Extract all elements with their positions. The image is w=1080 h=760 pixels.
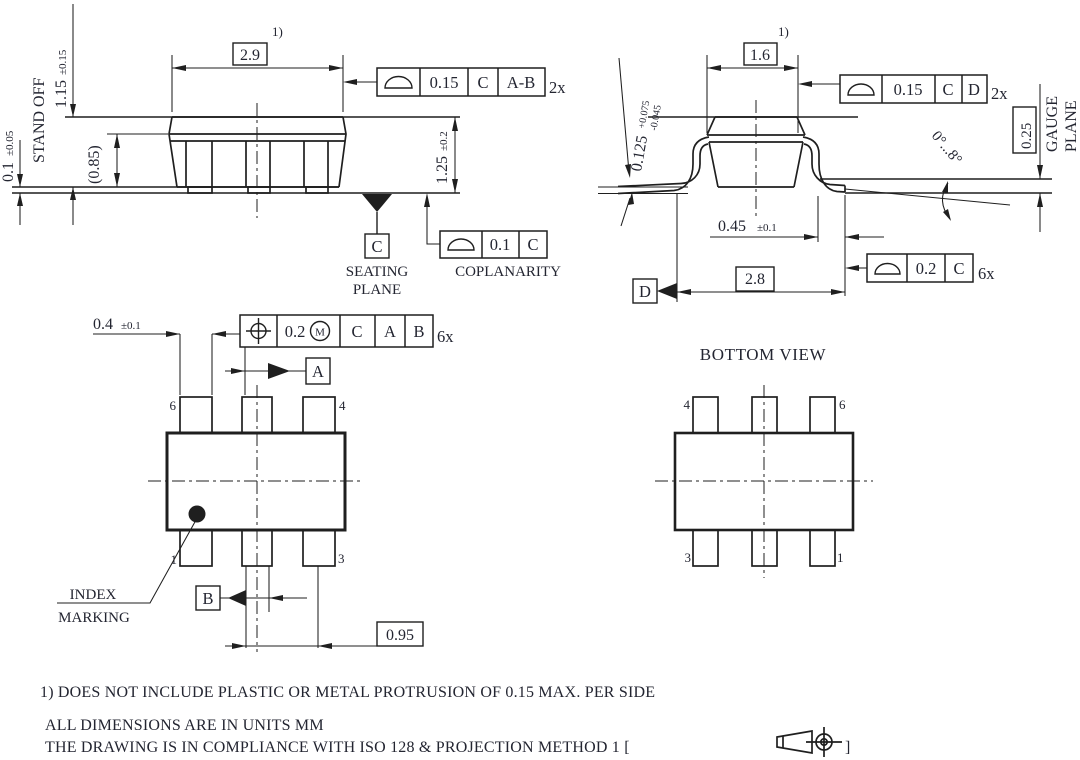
index-marking-dot [189,506,206,523]
note-line-3: THE DRAWING IS IN COMPLIANCE WITH ISO 12… [45,739,630,756]
pin-6 [180,397,212,433]
svg-text:0.1: 0.1 [0,162,17,182]
dim-body-width: 1.6 [750,47,770,64]
svg-text:1.25: 1.25 [434,156,451,184]
profile-tolerance-frame-top-left: 0.15 C A-B 2x [343,68,566,97]
pin-label-6: 6 [170,398,177,413]
svg-text:±0.15: ±0.15 [57,49,69,75]
package-outline-drawing: 2.9 1) 1.15 ±0.15 0.1 ±0.05 STAND OFF (0… [0,0,1080,760]
pin-3 [303,530,335,566]
svg-text:±0.05: ±0.05 [4,130,16,156]
svg-text:C: C [371,237,382,256]
coplanarity-frame: 0.1 C COPLANARITY [424,193,561,280]
svg-text:0.2: 0.2 [285,322,306,341]
pin-label-4: 4 [684,397,691,412]
svg-text:6x: 6x [437,327,454,346]
datum-triangle-icon [657,283,677,299]
svg-text:C: C [477,73,488,92]
pin-6 [810,397,835,433]
svg-text:SEATING: SEATING [346,264,409,280]
pin-3 [693,530,718,566]
svg-text:STAND OFF: STAND OFF [31,77,48,163]
dim-body-height: 1.15 ±0.15 [53,49,70,108]
profile-tolerance-frame-bottom-right: 0.2 C 6x [845,254,995,283]
drawing-canvas: 2.9 1) 1.15 ±0.15 0.1 ±0.05 STAND OFF (0… [0,0,1080,760]
datum-a-flag: A [225,358,330,384]
pin-1 [810,530,835,566]
svg-text:A: A [384,322,396,341]
svg-text:0.25: 0.25 [1019,123,1035,149]
lead-foot [306,187,328,193]
svg-text:C: C [351,322,362,341]
lead-foot [188,187,212,193]
svg-text:MARKING: MARKING [58,610,130,626]
pin-label-3: 3 [338,551,345,566]
gauge-plane-dim: 0.25 GAUGE PLANE [1013,84,1080,232]
svg-text:A-B: A-B [507,73,535,92]
svg-text:±0.2: ±0.2 [438,131,450,151]
svg-text:6x: 6x [978,264,995,283]
svg-text:0.4: 0.4 [93,316,113,333]
end-view: 1.6 1) 0.15 C D 2x 0.125 +0.075 -0.04 [598,24,1080,303]
pin-label-4: 4 [339,398,346,413]
note-line-2: ALL DIMENSIONS ARE IN UNITS MM [45,717,324,734]
svg-text:0.125: 0.125 [628,134,651,172]
svg-text:C: C [942,80,953,99]
svg-text:0°...8°: 0°...8° [928,128,965,168]
svg-text:0.1: 0.1 [490,235,511,254]
profile-tolerance-frame-top-right: 0.15 C D 2x [798,75,1008,103]
svg-text:PLANE: PLANE [1063,100,1080,152]
svg-text:2x: 2x [991,84,1008,103]
lead-thickness-dim: 0.125 +0.075 -0.045 [619,58,664,226]
note-ref-1: 1) [778,24,789,39]
svg-text:M: M [315,327,325,339]
notes: 1) DOES NOT INCLUDE PLASTIC OR METAL PRO… [40,684,851,757]
svg-text:C: C [953,259,964,278]
svg-text:0.15: 0.15 [430,73,459,92]
svg-text:D: D [639,282,651,301]
side-view: 2.9 1) 1.15 ±0.15 0.1 ±0.05 STAND OFF (0… [0,4,566,298]
pin-4 [693,397,718,433]
svg-text:0.45: 0.45 [718,218,746,235]
note-ref-1: 1) [272,24,283,39]
svg-text:2.8: 2.8 [745,271,765,288]
dim-total-height: 1.25 ±0.2 [434,131,451,184]
dim-body-width: 2.9 [240,47,260,64]
datum-triangle-icon [362,194,392,212]
index-marking-callout: INDEX MARKING [57,520,196,626]
svg-text:D: D [968,80,980,99]
pitch-dim: 0.95 [225,622,423,649]
svg-text:0.15: 0.15 [894,80,923,99]
svg-text:C: C [527,235,538,254]
bottom-view-title: BOTTOM VIEW [700,345,827,364]
svg-text:B: B [413,322,424,341]
datum-d-flag: D [633,279,677,303]
svg-text:GAUGE: GAUGE [1044,96,1061,152]
lead-angle-line [845,189,1010,205]
pin-label-6: 6 [839,397,846,412]
pin-label-1: 1 [837,550,844,565]
svg-text:0.2: 0.2 [916,259,937,278]
lead-span-dim: 2.8 [677,194,845,302]
svg-text:B: B [202,589,213,608]
lead-width-dim: 0.4 ±0.1 [93,316,245,395]
seating-plane-datum: C SEATING PLANE [346,194,409,298]
bottom-view: BOTTOM VIEW 4 6 3 1 [655,345,873,578]
datum-triangle-icon [228,590,246,606]
pin-1 [180,530,212,566]
svg-text:INDEX: INDEX [70,587,117,603]
first-angle-projection-icon [777,727,842,757]
svg-text:±0.1: ±0.1 [121,320,141,332]
lead-angle-dim: 0°...8° [928,128,965,221]
pin-4 [303,397,335,433]
svg-text:2x: 2x [549,78,566,97]
note-line-3-close: ] [845,739,851,756]
right-lead-outline [803,137,845,192]
dim-standoff: 0.1 ±0.05 [0,130,17,182]
top-view: 6 4 1 3 0.4 ±0.1 0 [57,315,454,652]
position-tolerance-frame: 0.2 M C A B 6x [240,315,454,347]
note-line-1: 1) DOES NOT INCLUDE PLASTIC OR METAL PRO… [40,684,655,701]
svg-text:(0.85): (0.85) [86,145,103,184]
svg-text:PLANE: PLANE [353,282,401,298]
datum-triangle-icon [268,363,290,379]
svg-text:1.15: 1.15 [53,80,70,108]
svg-text:0.95: 0.95 [386,627,414,644]
standoff-label: STAND OFF [31,77,48,163]
lead-foot [248,187,270,193]
dim-inner-height: (0.85) [86,145,103,184]
svg-text:±0.1: ±0.1 [757,222,777,234]
svg-text:COPLANARITY: COPLANARITY [455,264,561,280]
svg-text:A: A [312,362,324,381]
pin-label-3: 3 [685,550,692,565]
